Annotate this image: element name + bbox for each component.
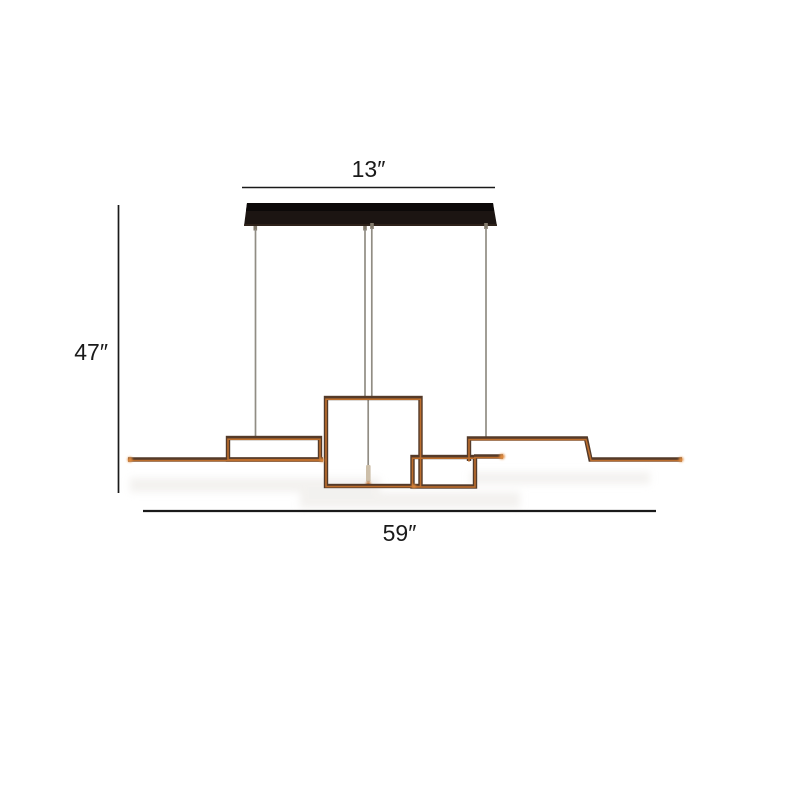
- led-tip-left-joint: [320, 458, 324, 462]
- suspension-cables: [256, 228, 487, 466]
- led-tip-right: [679, 457, 684, 462]
- glow-center-rectangle: [326, 399, 421, 486]
- fixture-length-label: 59″: [143, 522, 656, 545]
- led-tip-small-rect: [412, 484, 416, 488]
- soft-shadow: [130, 472, 650, 508]
- frame-left-rectangle: [228, 438, 320, 460]
- ceiling-canopy: [244, 203, 497, 231]
- dimension-diagram: 13″ 47″ 59″: [0, 0, 800, 800]
- glow-left-rectangle: [228, 439, 320, 460]
- frame-center-rectangle: [326, 398, 421, 486]
- led-tip-left: [127, 457, 132, 462]
- canopy-top-face: [246, 203, 494, 211]
- dimension-lines: [119, 188, 657, 512]
- canopy-width-label: 13″: [242, 158, 495, 181]
- cable-connector: [366, 465, 371, 482]
- led-tip-mid: [499, 454, 505, 460]
- fixture-illustration: [0, 0, 800, 800]
- drop-height-label: 47″: [30, 341, 108, 364]
